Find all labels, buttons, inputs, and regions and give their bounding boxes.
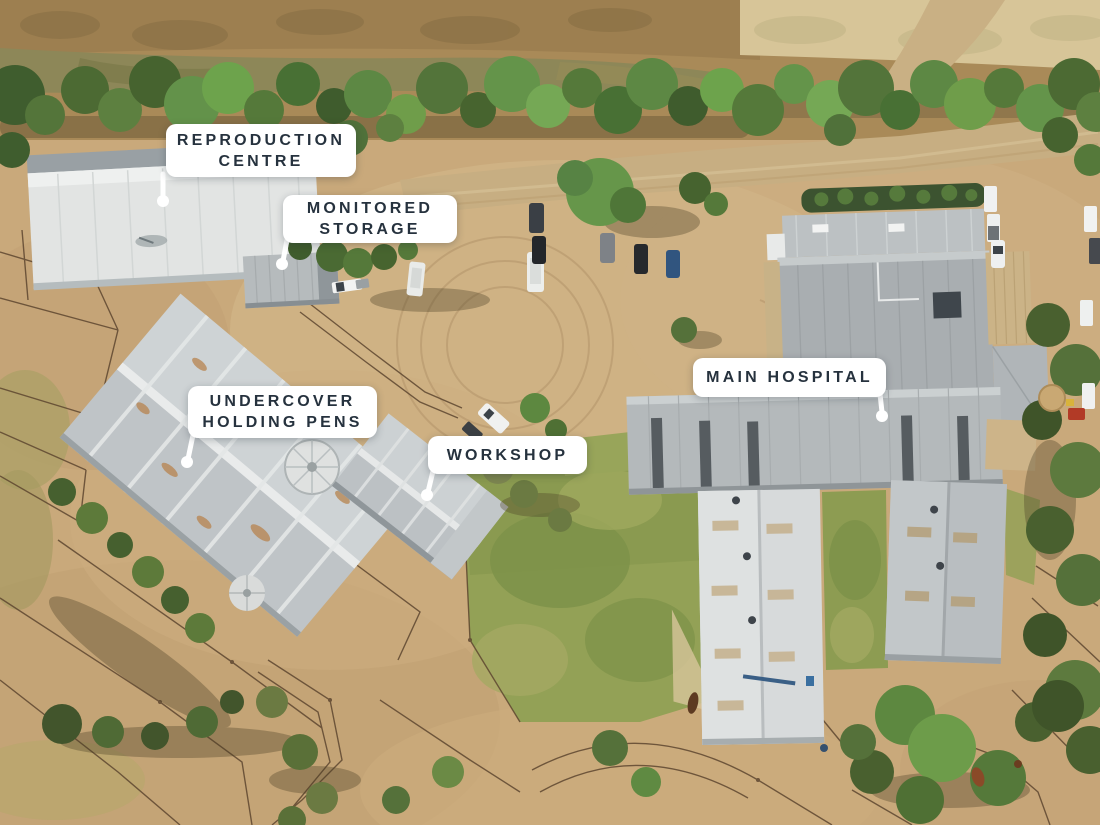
callout-main-hospital: MAIN HOSPITAL	[693, 358, 886, 397]
callout-workshop: WORKSHOP	[428, 436, 587, 474]
callout-undercover-holding-pens: UNDERCOVER HOLDING PENS	[188, 386, 377, 438]
callout-label-line: MONITORED	[307, 198, 433, 219]
callout-label-line: MAIN HOSPITAL	[706, 367, 873, 388]
main-hospital-south-wing	[626, 387, 1002, 495]
callout-label-line: HOLDING PENS	[202, 412, 362, 433]
aerial-photo	[0, 0, 1100, 825]
callout-label-line: REPRODUCTION	[177, 130, 345, 151]
callout-label-line: CENTRE	[219, 151, 304, 172]
callout-label-line: WORKSHOP	[447, 445, 569, 466]
callout-label-line: STORAGE	[319, 219, 420, 240]
callout-reproduction-centre: REPRODUCTION CENTRE	[166, 124, 356, 177]
stable-barn-right	[885, 480, 1007, 664]
callout-monitored-storage: MONITORED STORAGE	[283, 195, 457, 243]
aerial-photo-stage: REPRODUCTION CENTRE MONITORED STORAGE UN…	[0, 0, 1100, 825]
callout-label-line: UNDERCOVER	[210, 391, 356, 412]
